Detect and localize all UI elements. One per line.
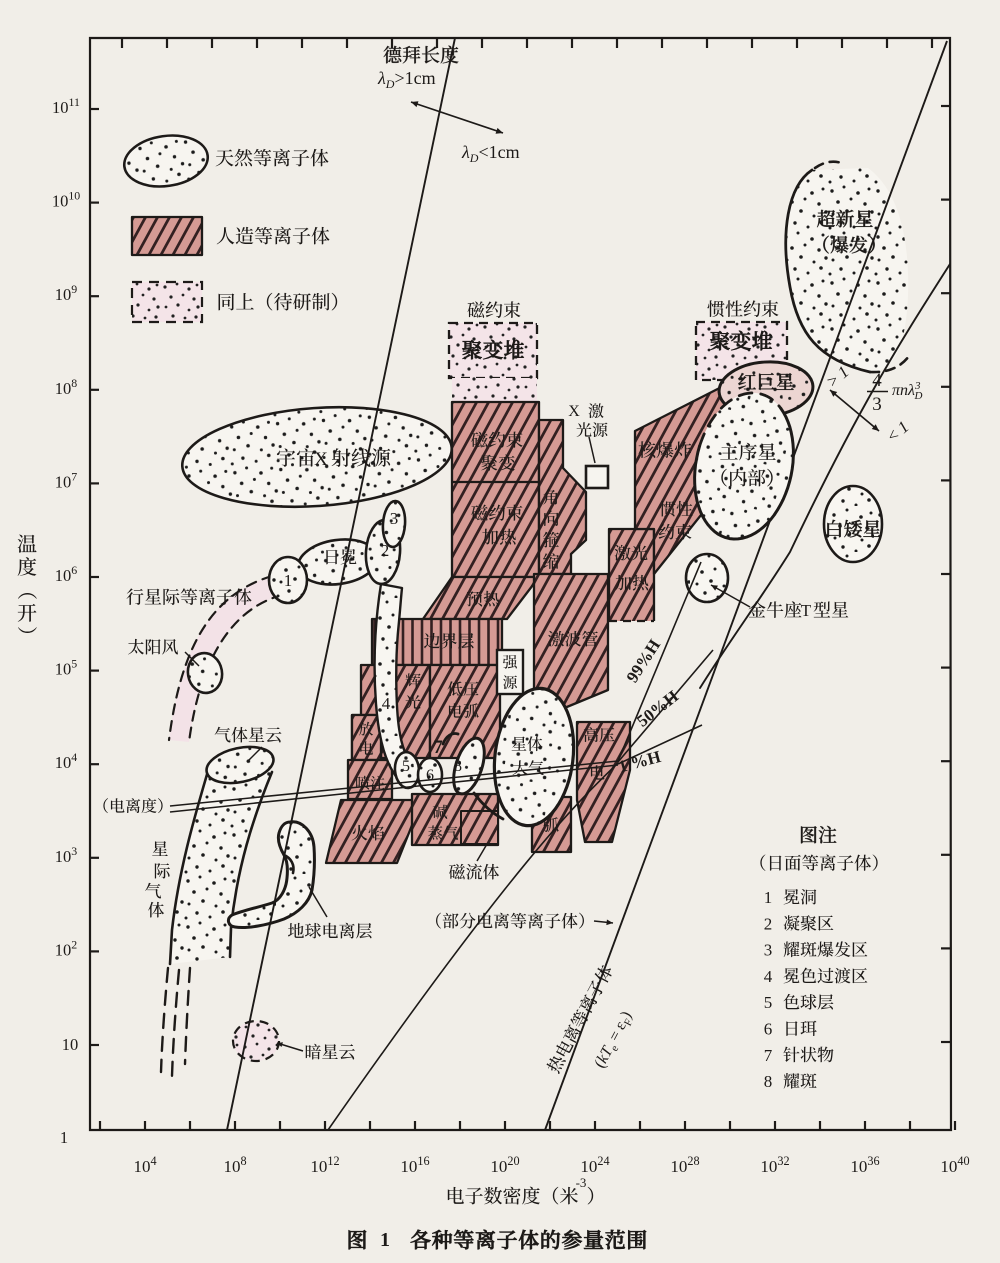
svg-text:1012: 1012 [310, 1154, 339, 1176]
svg-text:4: 4 [764, 967, 773, 986]
svg-text:105: 105 [55, 657, 78, 679]
svg-text:T: T [801, 601, 812, 620]
svg-text:1: 1 [380, 1229, 390, 1251]
svg-text:1024: 1024 [580, 1154, 609, 1176]
svg-text:-3: -3 [576, 1175, 587, 1190]
svg-text:< 1: < 1 [882, 417, 912, 447]
svg-text:3: 3 [390, 509, 399, 528]
svg-text:107: 107 [55, 469, 78, 491]
svg-text:2: 2 [764, 914, 773, 933]
svg-text:1: 1 [764, 888, 773, 907]
svg-text:104: 104 [55, 750, 78, 772]
svg-text:3: 3 [764, 941, 773, 960]
svg-text:7: 7 [433, 737, 443, 758]
svg-text:2: 2 [381, 541, 390, 560]
svg-text:109: 109 [55, 282, 78, 304]
svg-text:πnλ3D: πnλ3D [892, 380, 922, 402]
svg-text:1016: 1016 [400, 1154, 429, 1176]
svg-text:5: 5 [402, 758, 410, 775]
svg-text:103: 103 [55, 844, 78, 866]
svg-text:5: 5 [764, 993, 773, 1012]
svg-text:8: 8 [454, 758, 462, 775]
svg-text:1: 1 [284, 571, 293, 590]
svg-text:1028: 1028 [670, 1154, 699, 1176]
svg-text:6: 6 [426, 767, 434, 784]
svg-text:4: 4 [382, 694, 391, 713]
svg-text:104: 104 [133, 1154, 156, 1176]
svg-text:1011: 1011 [52, 95, 80, 117]
svg-text:99%H: 99%H [623, 636, 665, 686]
svg-text:108: 108 [55, 376, 78, 398]
svg-text:1020: 1020 [490, 1154, 519, 1176]
svg-text:(kTe = εF): (kTe = εF) [591, 1009, 637, 1073]
svg-text:102: 102 [55, 937, 78, 959]
svg-text:λD<1cm: λD<1cm [461, 142, 520, 165]
svg-text:6: 6 [764, 1020, 773, 1039]
svg-text:10: 10 [62, 1035, 79, 1054]
svg-text:4: 4 [872, 370, 882, 391]
svg-text:8: 8 [764, 1072, 773, 1091]
svg-text:7: 7 [764, 1046, 773, 1065]
svg-text:1032: 1032 [760, 1154, 789, 1176]
svg-text:108: 108 [223, 1154, 246, 1176]
svg-text:1040: 1040 [940, 1154, 969, 1176]
svg-text:106: 106 [55, 563, 78, 585]
svg-text:1036: 1036 [850, 1154, 879, 1176]
svg-text:λD>1cm: λD>1cm [377, 68, 436, 91]
svg-text:1010: 1010 [52, 189, 80, 211]
svg-text:1: 1 [60, 1128, 68, 1147]
svg-text:X: X [314, 449, 328, 470]
svg-text:3: 3 [872, 394, 882, 415]
svg-text:X: X [568, 403, 580, 420]
